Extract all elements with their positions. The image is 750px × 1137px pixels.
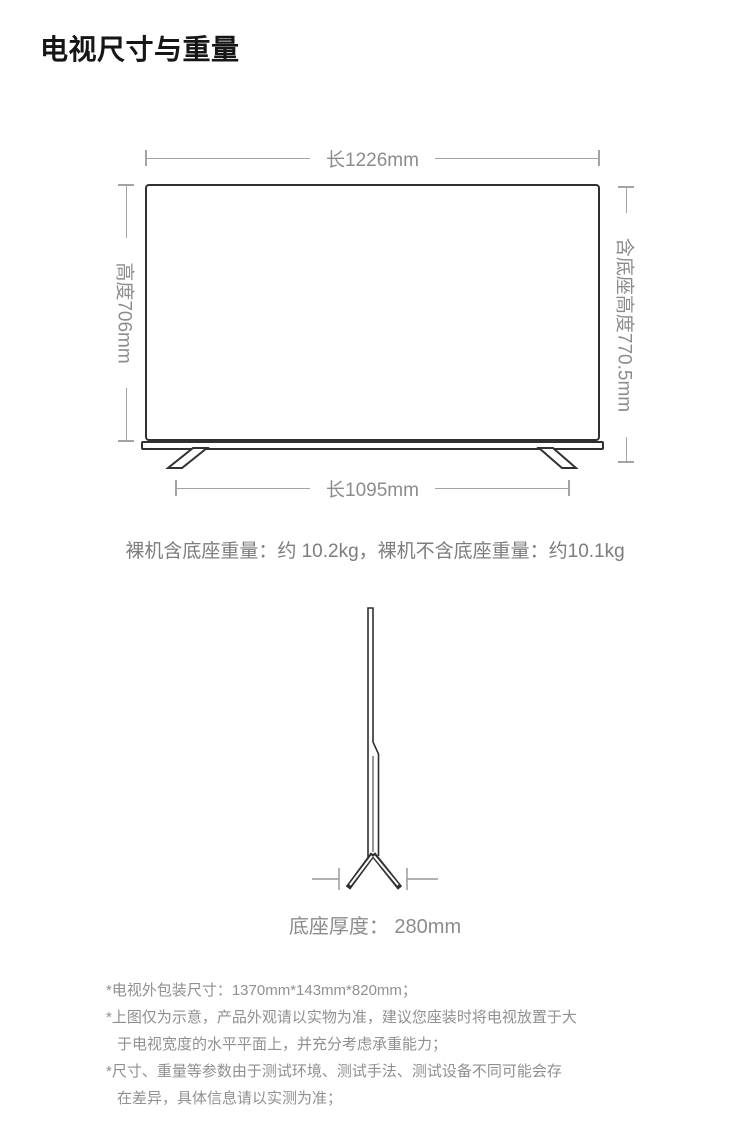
dimension-line	[147, 158, 310, 159]
dimension-panel-height: 高度706mm	[114, 184, 138, 442]
weight-text: 裸机含底座重量：约 10.2kg，裸机不含底座重量：约10.1kg	[0, 536, 750, 563]
dimension-label-height-with-stand: 含底座高度770.5mm	[614, 213, 638, 437]
tv-foot-right	[532, 447, 592, 470]
base-depth-label: 底座厚度： 280mm	[0, 910, 750, 939]
footnote-item: *上图仅为示意，产品外观请以实物为准，建议您座装时将电视放置于大 于电视宽度的水…	[106, 1004, 686, 1058]
footnote-item: *尺寸、重量等参数由于测试环境、测试手法、测试设备不同可能会存 在差异，具体信息…	[106, 1058, 686, 1112]
dimension-label-panel-height: 高度706mm	[114, 238, 138, 388]
dimension-tick	[598, 150, 600, 166]
dimension-tick	[118, 440, 134, 442]
dimension-label-stand-span: 长1095mm	[326, 475, 419, 502]
tv-foot-left	[155, 447, 215, 470]
tv-front-panel	[145, 184, 600, 441]
dimension-height-with-stand: 含底座高度770.5mm	[614, 186, 638, 463]
footnote-item: *电视外包装尺寸：1370mm*143mm*820mm；	[106, 977, 686, 1004]
dimension-line	[126, 388, 127, 440]
tv-spec-section: 电视尺寸与重量 长1226mm 高度706mm 含底座高度770.5mm	[0, 0, 750, 1137]
dimension-line	[435, 158, 598, 159]
dimension-stand-span: 长1095mm	[175, 480, 570, 496]
dimension-line	[626, 188, 627, 213]
dimension-tick	[618, 461, 634, 463]
page-title: 电视尺寸与重量	[40, 28, 240, 68]
dimension-top-width: 长1226mm	[145, 150, 600, 166]
dimension-label-top-width: 长1226mm	[326, 145, 419, 172]
tv-side-view	[310, 600, 450, 895]
dimension-tick	[568, 480, 570, 496]
dimension-line	[626, 437, 627, 462]
footnotes: *电视外包装尺寸：1370mm*143mm*820mm； *上图仅为示意，产品外…	[106, 977, 686, 1112]
dimension-line	[177, 488, 310, 489]
dimension-line	[126, 186, 127, 238]
dimension-line	[435, 488, 568, 489]
